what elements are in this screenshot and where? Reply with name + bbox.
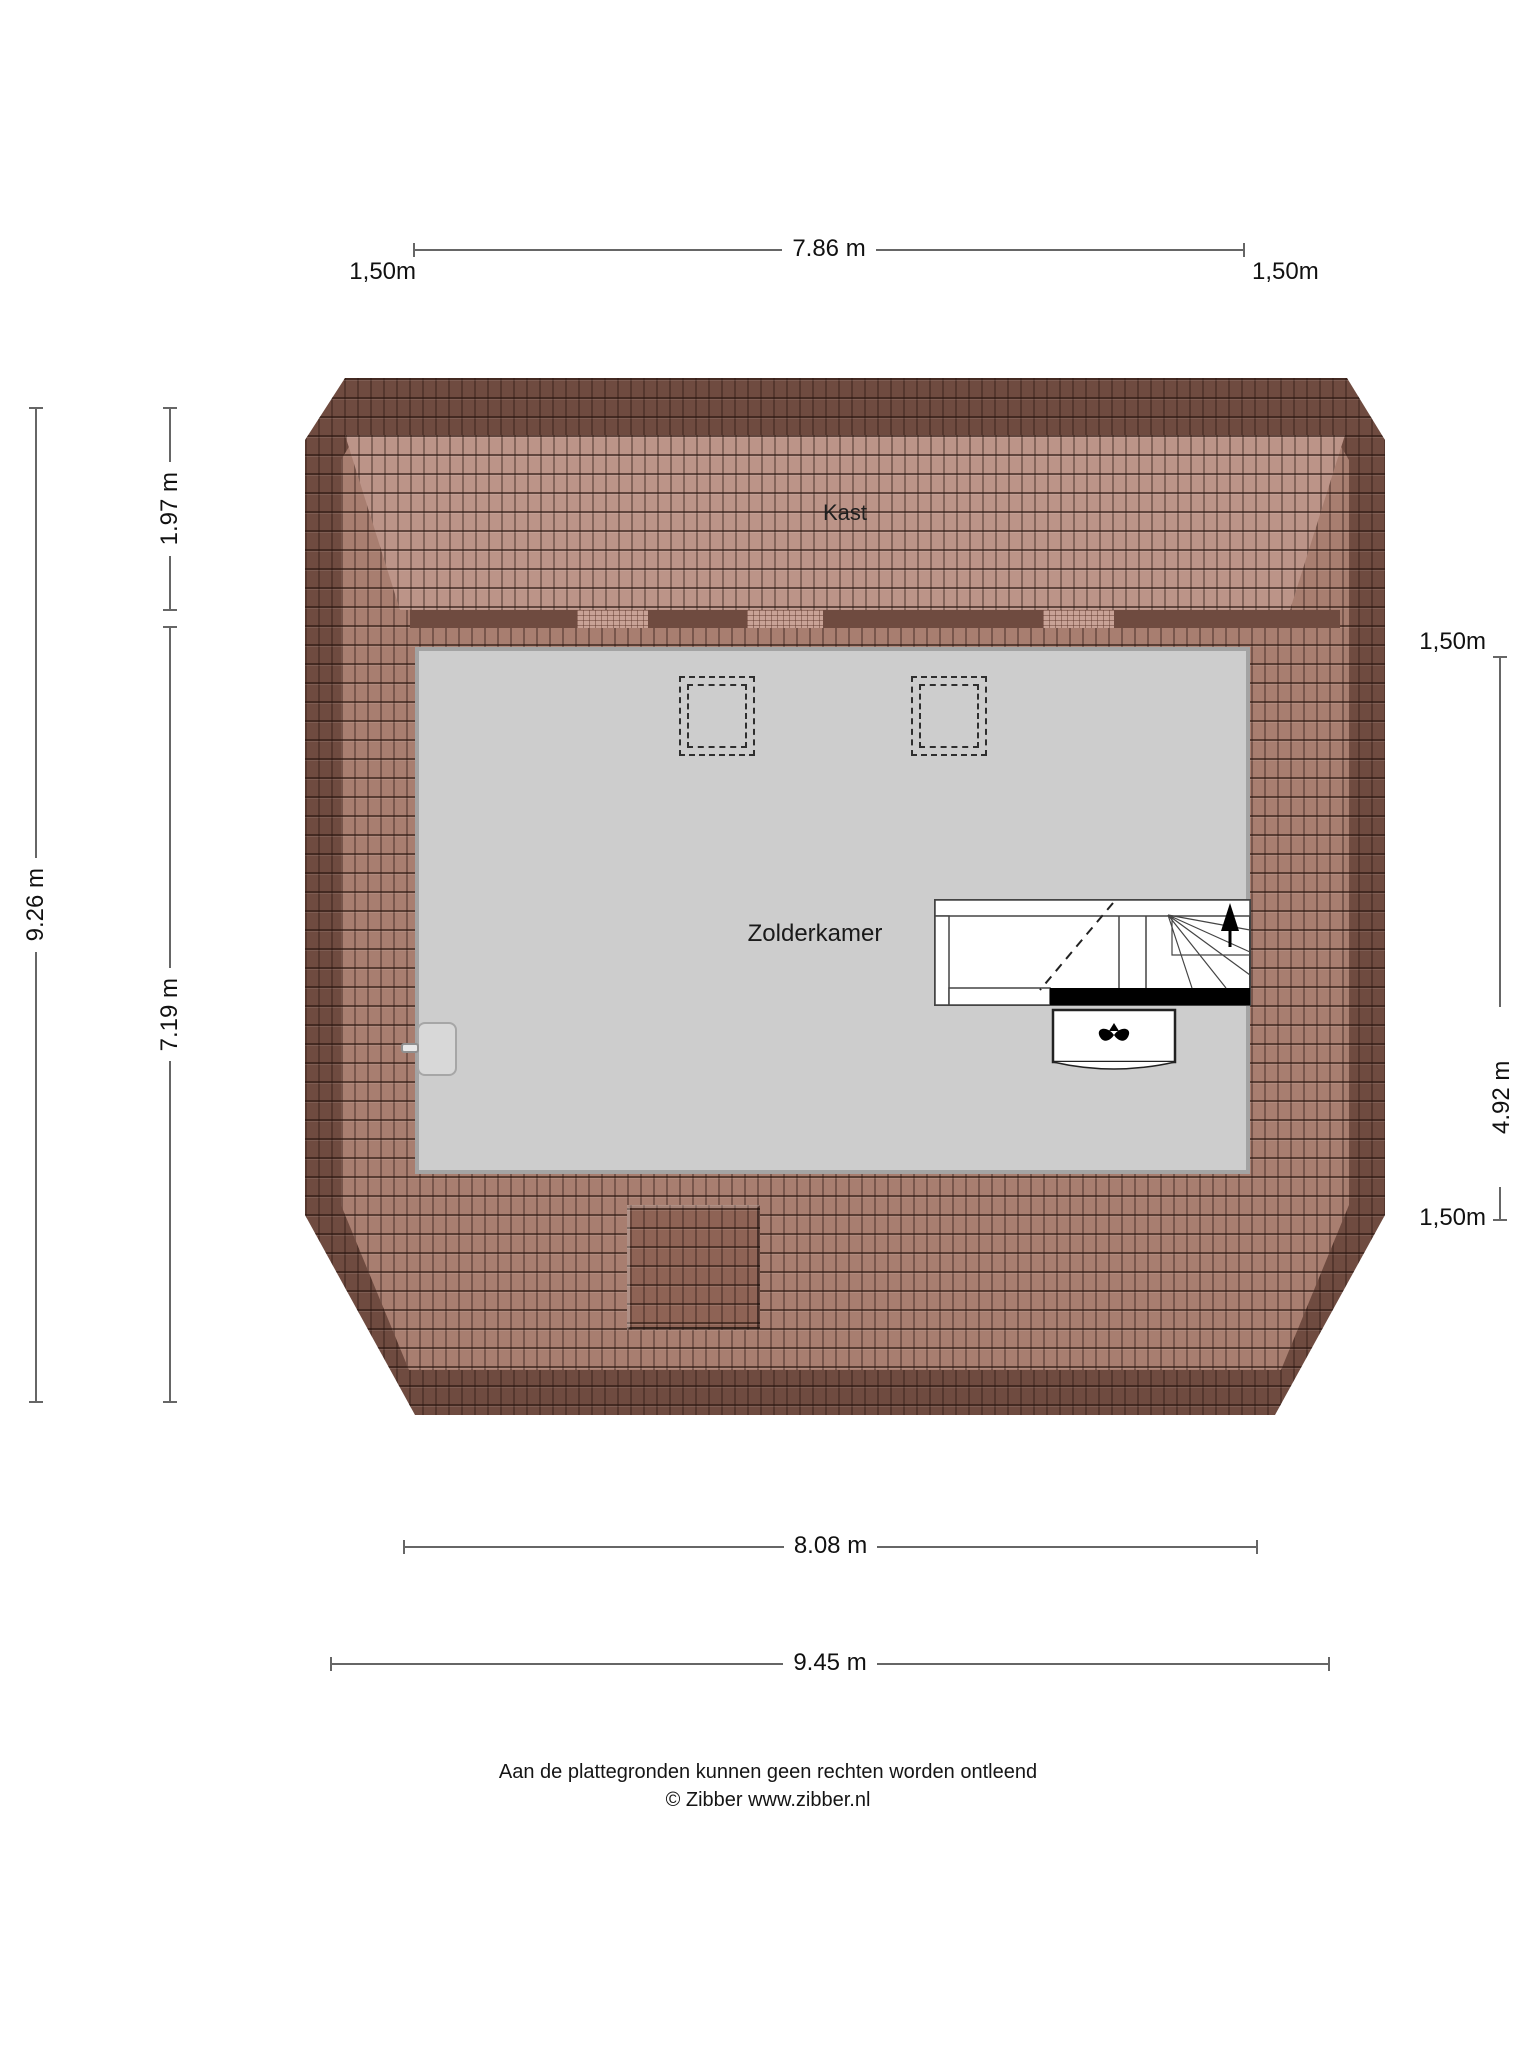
stair-entry-arc bbox=[1053, 1062, 1175, 1069]
dim-line bbox=[877, 1546, 1256, 1548]
dim-line bbox=[169, 628, 171, 968]
staircase bbox=[930, 895, 1255, 1070]
dim-label: 7.19 m bbox=[156, 968, 184, 1061]
dim-left-room-719: 7.19 m bbox=[163, 626, 177, 1403]
dim-label: 4.92 m bbox=[1488, 1007, 1516, 1187]
dim-offset-top-right: 1,50m bbox=[1252, 258, 1319, 286]
dim-offset-right-top: 1,50m bbox=[1378, 628, 1486, 656]
dim-offset-right-bottom: 1,50m bbox=[1378, 1204, 1486, 1232]
dim-tick bbox=[1243, 243, 1245, 257]
kast-room-label: Kast bbox=[745, 500, 945, 526]
dim-line bbox=[169, 556, 171, 609]
dim-label: 9.45 m bbox=[783, 1649, 876, 1677]
disclaimer-line1: Aan de plattegronden kunnen geen rechten… bbox=[0, 1758, 1536, 1786]
roof-inset-panel bbox=[627, 1205, 760, 1330]
dim-tick bbox=[1256, 1540, 1258, 1554]
dim-line bbox=[1499, 1187, 1501, 1220]
roof-vent-strip bbox=[1043, 610, 1114, 628]
dim-offset-top-left: 1,50m bbox=[340, 258, 416, 286]
roof-vent-strip bbox=[747, 610, 823, 628]
dim-line bbox=[876, 249, 1243, 251]
dim-label: 8.08 m bbox=[784, 1532, 877, 1560]
dim-left-kast-197: 1.97 m bbox=[163, 407, 177, 611]
dim-tick bbox=[1328, 1657, 1330, 1671]
stair-black-band bbox=[1050, 988, 1250, 1005]
skylight-left bbox=[679, 676, 755, 756]
dim-line bbox=[332, 1663, 783, 1665]
dim-top-786: 7.86 m bbox=[413, 243, 1245, 257]
zolderkamer-room-label: Zolderkamer bbox=[665, 920, 965, 948]
dim-tick bbox=[1493, 1219, 1507, 1221]
skylight-left-inner bbox=[687, 684, 747, 748]
dim-line bbox=[405, 1546, 784, 1548]
dim-tick bbox=[163, 609, 177, 611]
dim-line bbox=[877, 1663, 1328, 1665]
dim-line bbox=[415, 249, 782, 251]
dim-tick bbox=[163, 1401, 177, 1403]
dim-tick bbox=[29, 1401, 43, 1403]
dim-left-total-926: 9.26 m bbox=[29, 407, 43, 1403]
dim-line bbox=[35, 952, 37, 1401]
stair-entry-box bbox=[1053, 1010, 1175, 1062]
dim-line bbox=[1499, 658, 1501, 1007]
knee-wall-door bbox=[417, 1022, 457, 1076]
disclaimer: Aan de plattegronden kunnen geen rechten… bbox=[0, 1758, 1536, 1814]
stair-top-band bbox=[935, 900, 1250, 916]
dim-bottom-808: 8.08 m bbox=[403, 1540, 1258, 1554]
dim-line bbox=[169, 409, 171, 462]
roof-vent-strip bbox=[577, 610, 648, 628]
stair-bottom-strip bbox=[949, 988, 1050, 1005]
skylight-right bbox=[911, 676, 987, 756]
stair-left-band bbox=[935, 916, 949, 1005]
dim-line bbox=[169, 1061, 171, 1401]
dim-line bbox=[35, 409, 37, 858]
floorplan-page: Kast Zolderkamer bbox=[0, 0, 1536, 2048]
door-latch-icon bbox=[401, 1043, 419, 1053]
dim-label: 9.26 m bbox=[22, 858, 50, 951]
skylight-right-inner bbox=[919, 684, 979, 748]
dim-label: 1.97 m bbox=[156, 462, 184, 555]
kast-knee-wall bbox=[410, 610, 1340, 628]
disclaimer-line2: © Zibber www.zibber.nl bbox=[0, 1786, 1536, 1814]
dim-bottom-945: 9.45 m bbox=[330, 1657, 1330, 1671]
dim-label: 7.86 m bbox=[782, 235, 875, 263]
